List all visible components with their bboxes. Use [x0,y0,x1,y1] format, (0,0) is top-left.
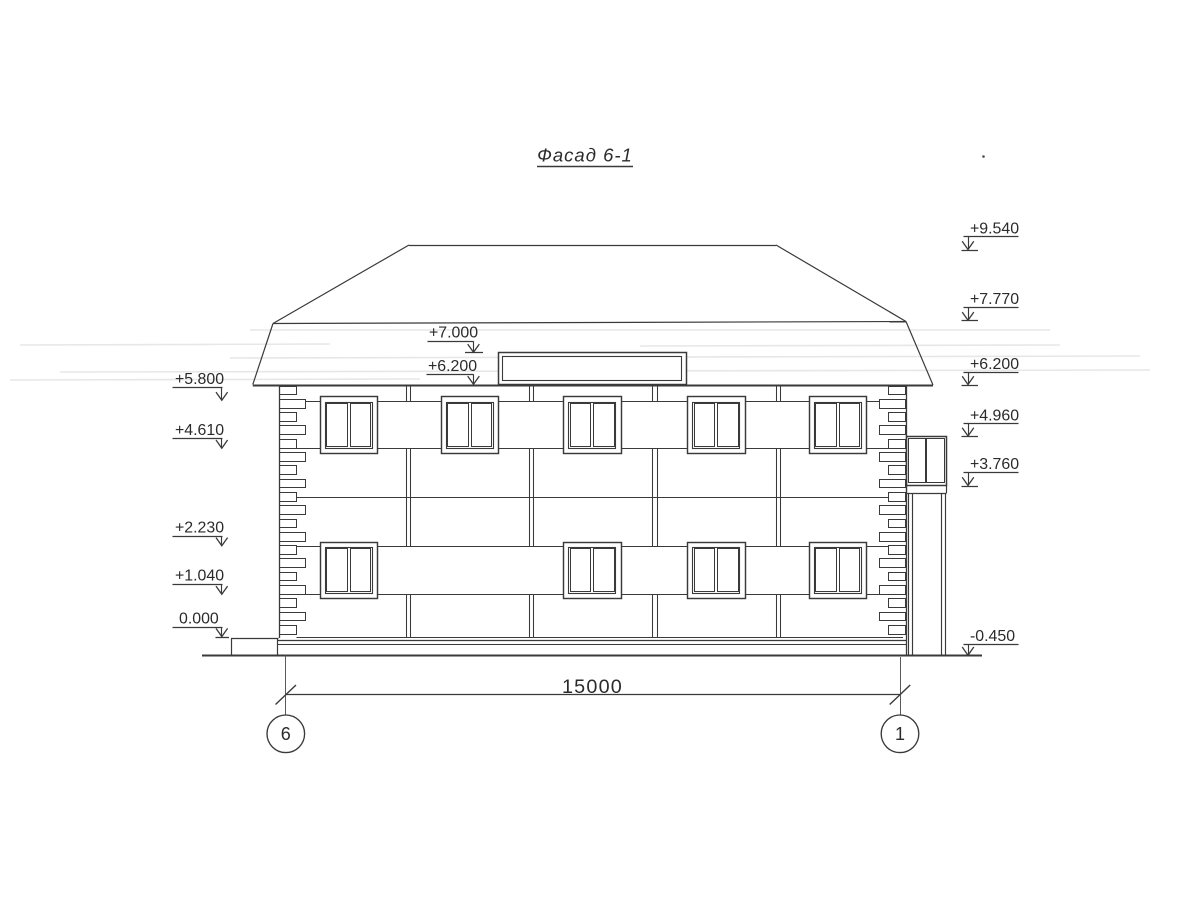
svg-text:+4.610: +4.610 [175,422,224,439]
svg-text:+3.760: +3.760 [970,456,1019,473]
svg-text:6: 6 [281,724,291,744]
svg-text:Фасад 6-1: Фасад 6-1 [537,145,633,166]
svg-text:-0.450: -0.450 [970,628,1015,645]
svg-text:+4.960: +4.960 [970,407,1019,424]
svg-text:1: 1 [895,724,905,744]
svg-text:+1.040: +1.040 [175,568,224,585]
svg-text:+7.770: +7.770 [970,291,1019,308]
svg-text:+7.000: +7.000 [429,325,478,342]
svg-text:+9.540: +9.540 [970,220,1019,237]
svg-text:+6.200: +6.200 [970,356,1019,373]
svg-text:0.000: 0.000 [179,611,219,628]
svg-text:+2.230: +2.230 [175,520,224,537]
svg-text:+5.800: +5.800 [175,371,224,388]
svg-text:+6.200: +6.200 [428,358,477,375]
svg-text:15000: 15000 [562,676,623,698]
